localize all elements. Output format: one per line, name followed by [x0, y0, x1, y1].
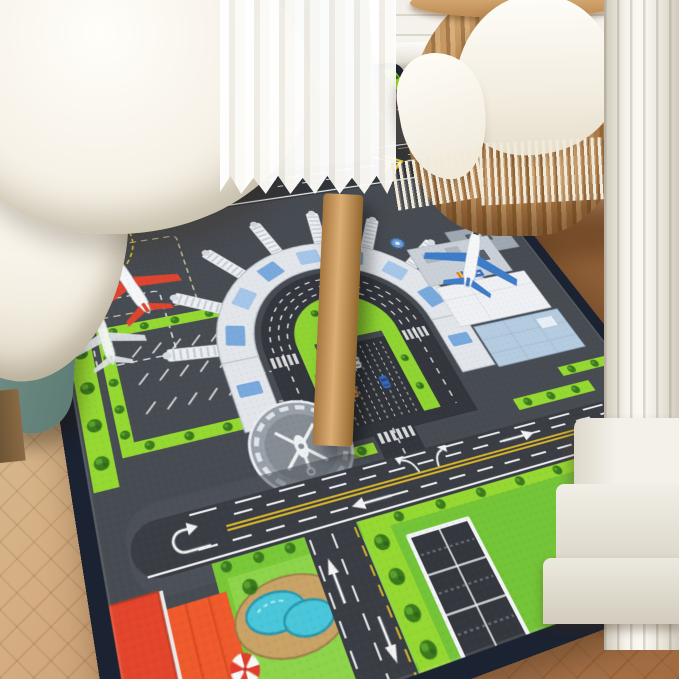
blanket-fringe — [478, 136, 619, 205]
column-base-step — [574, 418, 679, 490]
column-base-step — [543, 558, 679, 624]
sheer-curtain — [220, 0, 396, 194]
room-scene: 02 01 — [0, 0, 679, 679]
column-base-step — [556, 484, 679, 564]
